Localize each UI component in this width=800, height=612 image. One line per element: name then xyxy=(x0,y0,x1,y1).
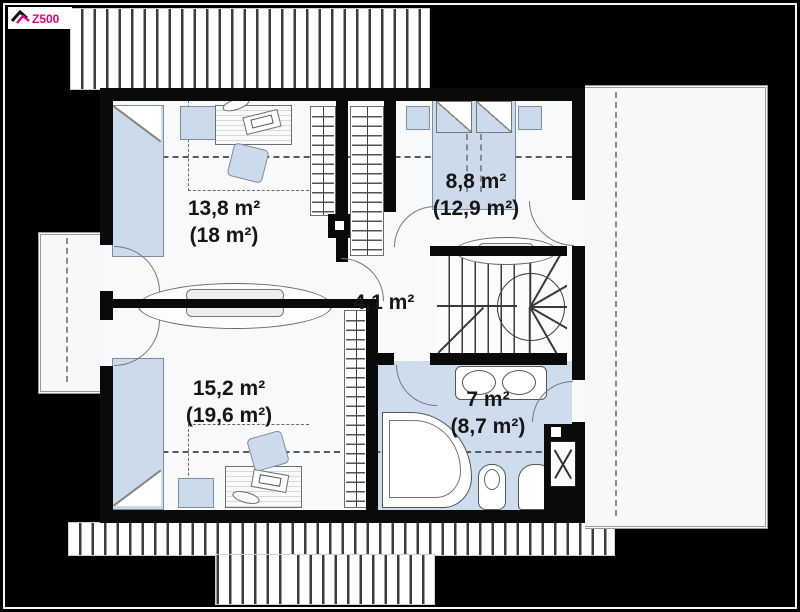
terrace-roofline-dashed xyxy=(615,92,617,516)
nightstand-bedroom-left xyxy=(406,106,430,130)
bed-fold-corner xyxy=(113,106,161,142)
wall-bathroom-top xyxy=(366,353,394,365)
roof-hatch-bottom-deep xyxy=(215,554,435,605)
room-label-area-total: (18 m²) xyxy=(190,224,259,248)
nightstand-bottom-left xyxy=(178,478,214,508)
z500-logo-graphic: Z500 xyxy=(10,9,70,27)
height-line-bottom-dashed xyxy=(112,451,572,453)
room-label-area-total: (19,6 m²) xyxy=(186,404,272,428)
wardrobe-left-of-wall xyxy=(310,106,336,216)
bidet-basin xyxy=(484,469,500,490)
wardrobe-bottom-left-room xyxy=(344,310,367,508)
terrace xyxy=(585,85,768,529)
room-label-area-total: (8,7 m²) xyxy=(451,415,526,439)
room-label-area: 13,8 m² xyxy=(188,197,260,221)
shaft-duct-small xyxy=(551,427,561,437)
room-label-area: 7 m² xyxy=(466,388,509,412)
logo-text: Z500 xyxy=(32,12,60,26)
wall-bathroom-left xyxy=(366,299,378,510)
wall-exterior-right-1 xyxy=(572,88,585,200)
wall-bedroom-bottom xyxy=(430,246,567,256)
logo: Z500 xyxy=(8,7,72,29)
wall-under-stairs xyxy=(430,353,567,365)
room-label-area-total: (12,9 m²) xyxy=(433,197,519,221)
bed-fold-corner xyxy=(113,470,161,506)
room-label-area: 8,8 m² xyxy=(446,170,507,194)
nightstand-bedroom-right xyxy=(518,106,542,130)
shaft-duct-x xyxy=(550,441,576,487)
wall-exterior-bottom xyxy=(100,510,585,523)
wall-exterior-right-2 xyxy=(572,246,585,380)
wardrobe-right-of-wall xyxy=(350,106,384,256)
wall-room-divider xyxy=(100,299,342,308)
floor-plan-canvas: Z500 xyxy=(0,0,800,612)
balcony-roofline-dashed xyxy=(66,238,68,382)
chimney-flue-opening xyxy=(335,221,344,230)
room-label-area: 4,1 m² xyxy=(354,291,415,315)
nightstand-top-left xyxy=(180,106,216,140)
wall-exterior-left-3 xyxy=(100,366,113,523)
pillow-left xyxy=(436,101,472,133)
wall-bedroom-left xyxy=(384,100,396,212)
pillow-right xyxy=(476,101,512,133)
wall-exterior-left-1 xyxy=(100,88,113,245)
balcony xyxy=(38,232,103,394)
staircase xyxy=(437,256,567,355)
roof-hatch-bottom-wide xyxy=(68,522,615,556)
room-label-area: 15,2 m² xyxy=(193,377,265,401)
stair-handrail-arc xyxy=(497,273,565,341)
roof-hatch-top xyxy=(70,8,430,90)
